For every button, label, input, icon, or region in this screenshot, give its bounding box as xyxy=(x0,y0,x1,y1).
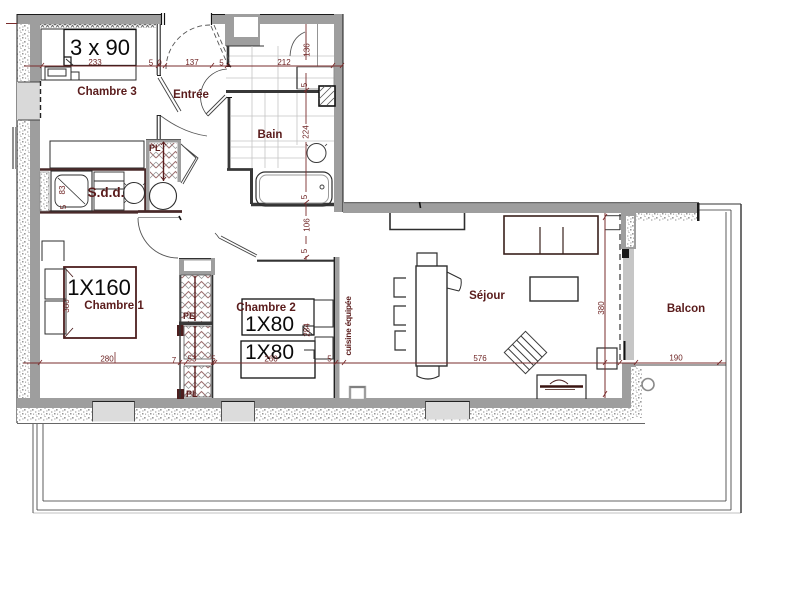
svg-text:5: 5 xyxy=(300,194,309,199)
svg-text:PE: PE xyxy=(183,311,195,321)
svg-text:280: 280 xyxy=(100,355,114,364)
svg-text:5: 5 xyxy=(300,248,309,253)
svg-text:190: 190 xyxy=(669,354,683,363)
svg-text:1X160: 1X160 xyxy=(67,275,131,300)
svg-text:PL: PL xyxy=(186,389,198,399)
svg-text:284: 284 xyxy=(303,323,312,337)
svg-text:5: 5 xyxy=(59,204,68,209)
svg-text:S.d.d.: S.d.d. xyxy=(88,185,125,200)
svg-text:5: 5 xyxy=(219,59,224,68)
svg-text:Chambre 2: Chambre 2 xyxy=(236,302,295,314)
svg-text:380: 380 xyxy=(597,301,606,315)
svg-text:136: 136 xyxy=(303,43,312,57)
svg-text:1X80: 1X80 xyxy=(245,313,294,336)
svg-text:PL: PL xyxy=(149,143,161,153)
svg-text:106: 106 xyxy=(303,218,312,232)
svg-text:0: 0 xyxy=(157,59,162,68)
svg-text:Chambre 3: Chambre 3 xyxy=(77,86,136,98)
svg-text:212: 212 xyxy=(277,58,291,67)
svg-text:cuisine équipée: cuisine équipée xyxy=(343,296,353,356)
svg-text:5: 5 xyxy=(327,355,332,364)
svg-text:3 x 90: 3 x 90 xyxy=(70,35,130,60)
svg-text:380: 380 xyxy=(62,299,71,313)
svg-text:233: 233 xyxy=(88,58,102,67)
svg-text:Balcon: Balcon xyxy=(667,303,705,315)
svg-text:Chambre 1: Chambre 1 xyxy=(84,300,144,312)
svg-text:Bain: Bain xyxy=(258,129,283,141)
svg-text:5: 5 xyxy=(300,82,309,87)
svg-text:5: 5 xyxy=(149,59,154,68)
svg-text:Séjour: Séjour xyxy=(469,290,505,302)
svg-text:224: 224 xyxy=(302,125,311,139)
svg-text:53: 53 xyxy=(188,355,197,364)
svg-text:137: 137 xyxy=(185,58,199,67)
svg-text:83: 83 xyxy=(58,185,67,194)
svg-text:5: 5 xyxy=(211,355,216,364)
svg-text:7: 7 xyxy=(172,356,177,365)
svg-text:260: 260 xyxy=(264,355,278,364)
svg-text:576: 576 xyxy=(473,354,487,363)
svg-text:Entrée: Entrée xyxy=(173,89,209,101)
